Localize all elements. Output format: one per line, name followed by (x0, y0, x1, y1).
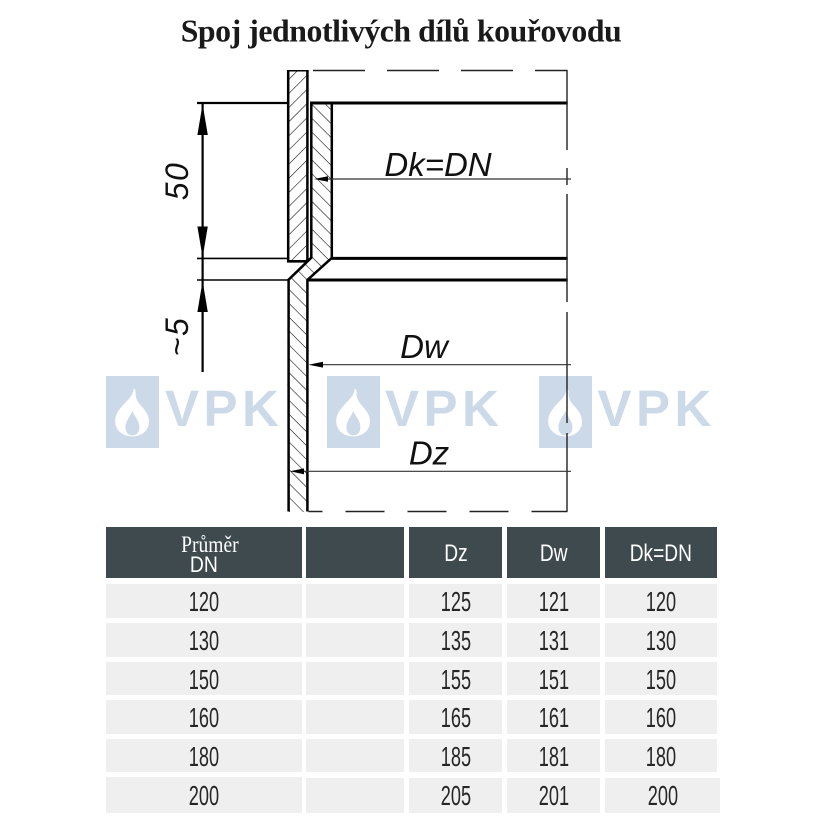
svg-text:Spoj jednotlivých dílů kouřovo: Spoj jednotlivých dílů kouřovodu (181, 13, 622, 48)
svg-text:Dz: Dz (409, 435, 450, 472)
svg-text:Dk=DN: Dk=DN (384, 146, 491, 183)
svg-text:50: 50 (159, 162, 195, 201)
svg-text:Dw: Dw (400, 328, 450, 365)
svg-text:~5: ~5 (159, 317, 195, 356)
